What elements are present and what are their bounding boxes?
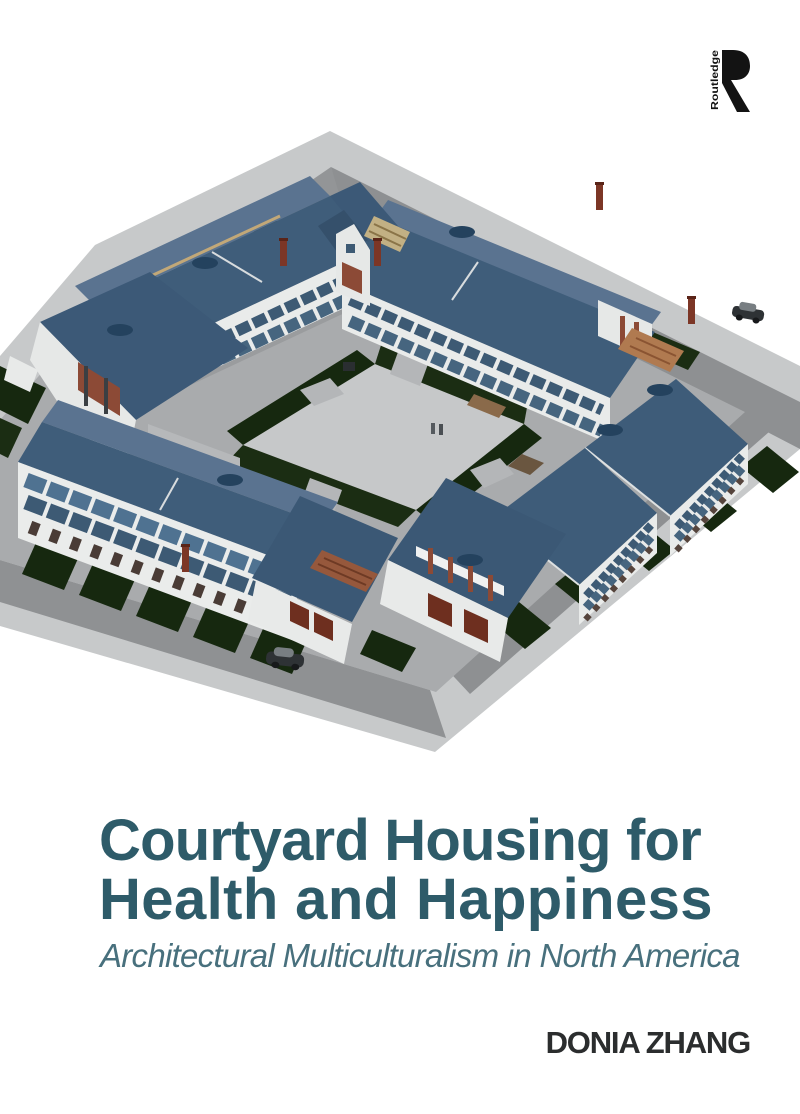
svg-text:Routledge: Routledge [709, 50, 721, 110]
